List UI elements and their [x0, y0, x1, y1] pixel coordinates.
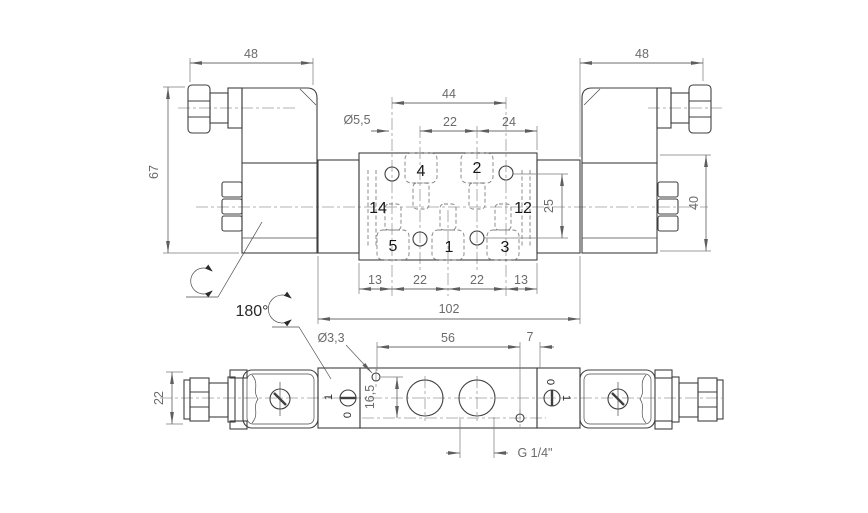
right-solenoid: [582, 85, 711, 253]
left-connector-side: [184, 370, 247, 429]
cable-gland-right-side: [698, 378, 717, 421]
dim-pilot-hole-diameter: Ø3,3: [317, 331, 344, 345]
right-override-flange: 0 1: [537, 368, 580, 428]
dim-67: 67: [147, 165, 161, 179]
port-label-4: 4: [417, 163, 426, 180]
dim-40: 40: [687, 196, 701, 210]
dim-22-top: 22: [443, 115, 457, 129]
dim-13-left: 13: [368, 273, 382, 287]
override-right-off-label: 0: [544, 379, 556, 385]
dim-44: 44: [442, 87, 456, 101]
dim-13-right: 13: [514, 273, 528, 287]
dim-22-bottom-left: 22: [413, 273, 427, 287]
port-label-3: 3: [501, 239, 510, 256]
left-solenoid: [188, 85, 317, 253]
rotation-arrow-icon: [268, 295, 291, 323]
top-view: 4 2 14 12 5 1 3: [147, 47, 722, 379]
cable-gland-left: [188, 85, 210, 133]
override-left-off-label: 0: [342, 412, 354, 418]
connector-housing-right: [582, 88, 657, 163]
dim-hole-diameter: Ø5,5: [343, 113, 370, 127]
port-label-5: 5: [389, 238, 398, 255]
port-label-1: 1: [445, 239, 454, 256]
dim-102: 102: [439, 302, 460, 316]
port-label-2: 2: [473, 160, 482, 177]
coil-left: [242, 163, 317, 253]
dim-48-left: 48: [244, 47, 258, 61]
valve-body: 4 2 14 12 5 1 3: [318, 153, 580, 260]
dim-24: 24: [502, 115, 516, 129]
coil-right: [582, 163, 657, 253]
dim-56: 56: [441, 331, 455, 345]
armature-rings-left: [222, 182, 242, 197]
right-connector-side: [655, 370, 723, 429]
dim-thread-g14: G 1/4": [517, 446, 552, 460]
dim-22-height: 22: [152, 391, 166, 405]
override-left-on-label: 1: [323, 394, 335, 400]
connector-housing-left: [242, 88, 317, 163]
left-coil-side: [243, 370, 318, 428]
port-label-12: 12: [514, 200, 532, 217]
valve-technical-drawing: 4 2 14 12 5 1 3: [0, 0, 868, 513]
rotation-symbols: 180°: [186, 222, 331, 379]
flange-left: [318, 160, 359, 253]
bottom-view: 1 0 0 1: [152, 330, 723, 460]
rotation-arrow-icon: [191, 268, 212, 294]
override-right-on-label: 1: [560, 395, 572, 401]
cable-gland-right: [689, 85, 711, 133]
dim-22-bottom-right: 22: [470, 273, 484, 287]
dim-7: 7: [527, 330, 534, 344]
cable-gland-left-side: [190, 378, 209, 421]
port-label-14: 14: [369, 200, 387, 217]
right-coil-side: [580, 370, 655, 428]
dim-48-right: 48: [635, 47, 649, 61]
dimensions-bottom-view: Ø3,3 56 7 16,5 22 G 1/4": [152, 330, 554, 460]
rotation-180-label: 180°: [235, 303, 268, 320]
dim-16-5: 16,5: [363, 385, 377, 409]
armature-rings-right: [658, 182, 678, 197]
dim-25: 25: [542, 199, 556, 213]
